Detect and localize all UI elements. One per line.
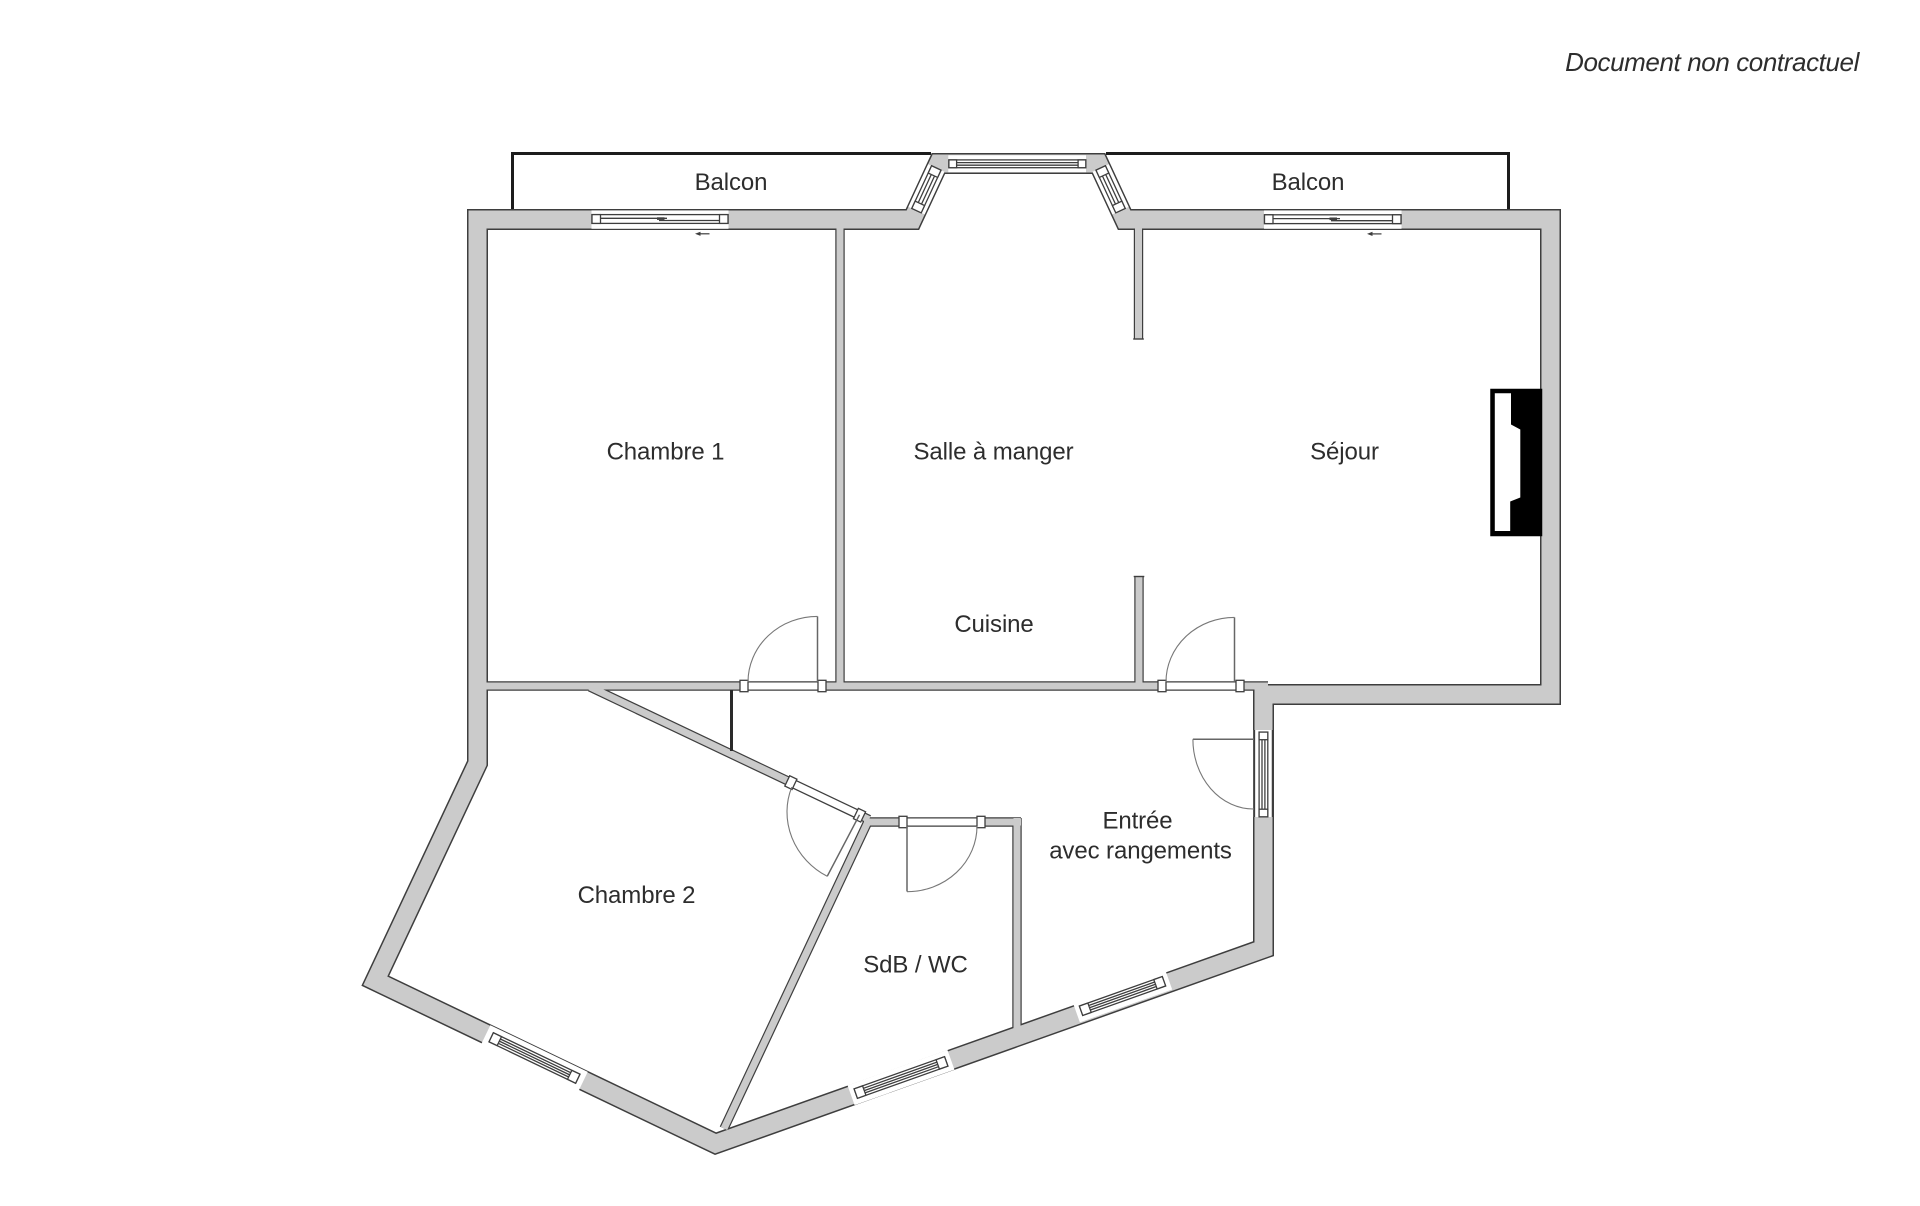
svg-text:Balcon: Balcon	[1272, 169, 1345, 196]
svg-text:SdB / WC: SdB / WC	[863, 952, 968, 979]
svg-text:Entrée: Entrée	[1102, 808, 1172, 835]
svg-text:avec rangements: avec rangements	[1049, 838, 1232, 865]
svg-text:Salle à manger: Salle à manger	[913, 439, 1073, 466]
svg-text:Cuisine: Cuisine	[954, 611, 1033, 638]
svg-text:Chambre 2: Chambre 2	[578, 882, 696, 909]
svg-text:Chambre 1: Chambre 1	[607, 439, 725, 466]
svg-text:Balcon: Balcon	[695, 169, 768, 196]
svg-text:Séjour: Séjour	[1310, 439, 1379, 466]
svg-text:Document non contractuel: Document non contractuel	[1565, 47, 1861, 77]
